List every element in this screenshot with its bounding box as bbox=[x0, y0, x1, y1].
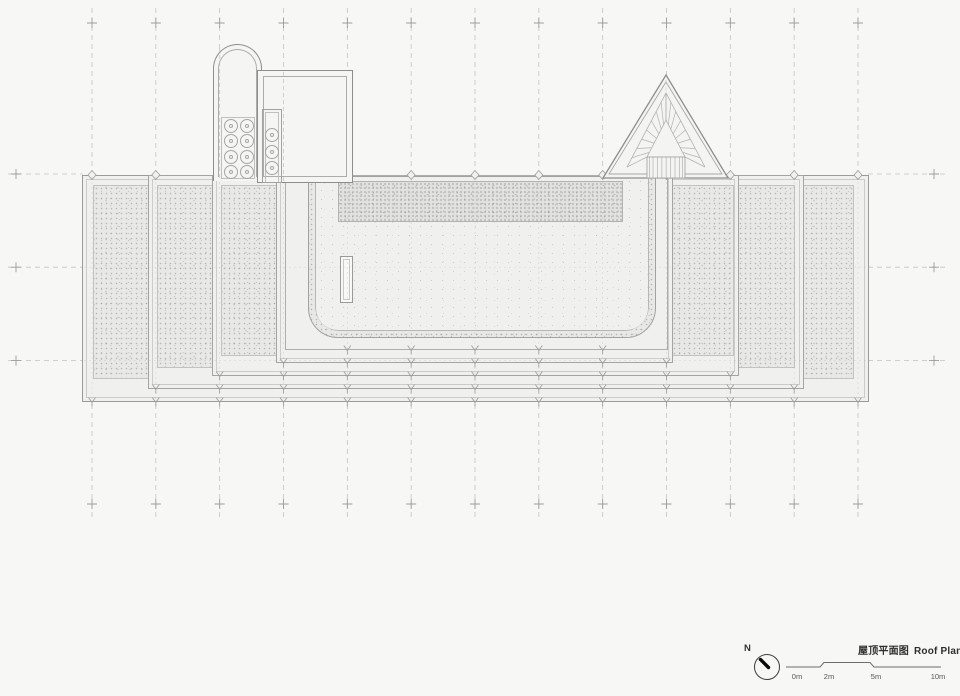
north-label: N bbox=[744, 643, 751, 654]
scale-bar-line bbox=[786, 663, 941, 668]
scale-label-10m: 10m bbox=[931, 672, 946, 681]
structure-gridlines bbox=[0, 0, 960, 696]
north-arrow-icon bbox=[754, 654, 780, 680]
drawing-title: 屋顶平面图Roof Plan bbox=[858, 642, 960, 657]
roof-plan-sheet: N 屋顶平面图Roof Plan 0m 2m 5m 10m bbox=[0, 0, 960, 696]
scale-label-0m: 0m bbox=[792, 672, 802, 681]
scale-bar: 0m 2m 5m 10m bbox=[786, 656, 956, 684]
north-needle bbox=[755, 655, 779, 679]
scale-label-5m: 5m bbox=[871, 672, 881, 681]
scale-label-2m: 2m bbox=[824, 672, 834, 681]
